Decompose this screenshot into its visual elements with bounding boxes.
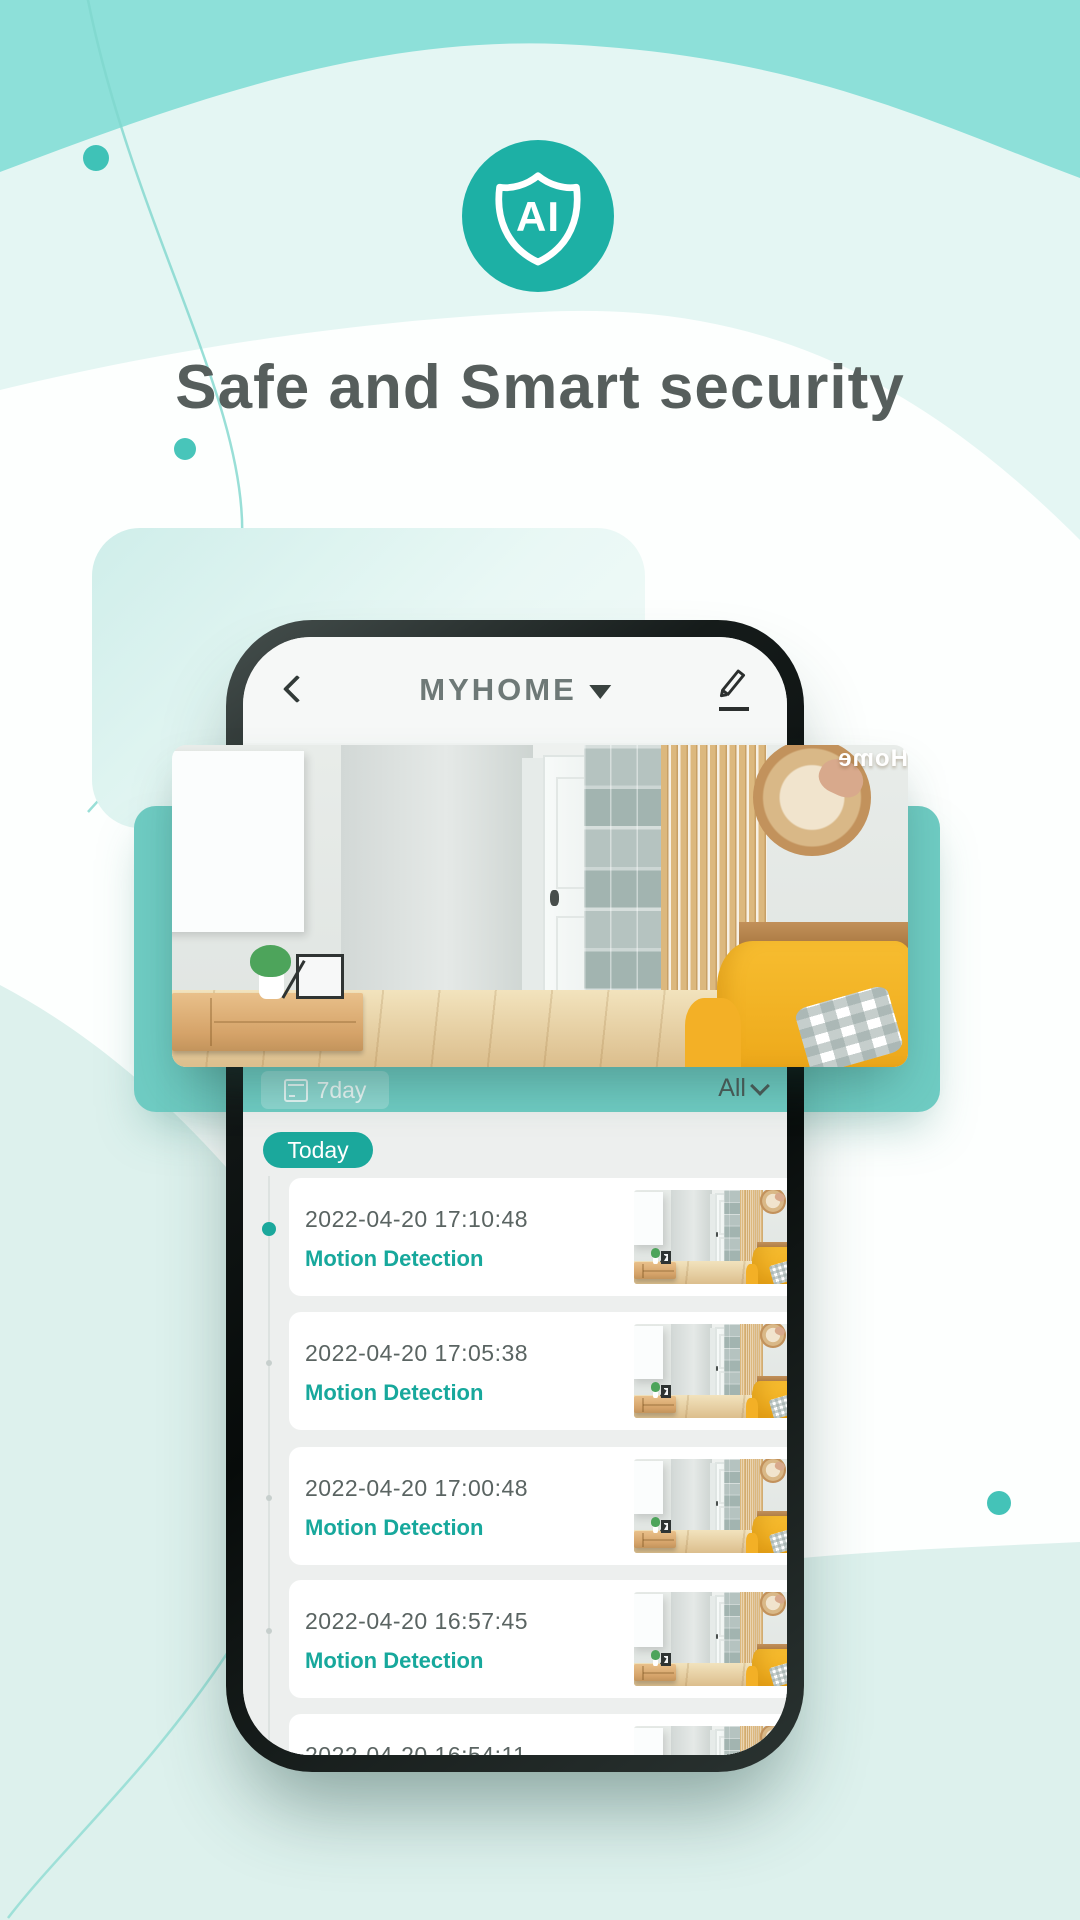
edit-underline xyxy=(719,707,749,711)
wood-wall-decor xyxy=(760,1190,786,1214)
tv-panel xyxy=(634,1461,663,1514)
timeline-dot xyxy=(266,1628,272,1634)
plant xyxy=(651,1517,660,1526)
event-thumbnail: Home xyxy=(634,1726,787,1755)
event-time: 2022-04-20 17:05:38 xyxy=(305,1340,528,1367)
sideboard xyxy=(634,1531,676,1548)
wood-wall-decor xyxy=(760,1726,786,1750)
range-label: 7day xyxy=(317,1077,367,1104)
event-row[interactable]: 2022-04-20 17:05:38 Motion Detection Hom… xyxy=(289,1312,787,1430)
event-type: Motion Detection xyxy=(305,1515,483,1541)
camera-scene: Home xyxy=(634,1592,787,1686)
event-row[interactable]: 2022-04-20 17:00:48 Motion Detection Hom… xyxy=(289,1447,787,1565)
page-title: Safe and Smart security xyxy=(0,352,1080,423)
tv-panel xyxy=(634,1728,663,1755)
camera-scene: Home xyxy=(634,1459,787,1553)
sideboard xyxy=(634,1262,676,1279)
range-7day-button[interactable]: 7day xyxy=(261,1071,389,1109)
camera-scene: Home xyxy=(172,745,908,1067)
plant xyxy=(250,945,291,977)
sideboard xyxy=(172,993,363,1051)
event-time: 2022-04-20 17:00:48 xyxy=(305,1475,528,1502)
picture-frame xyxy=(661,1385,672,1398)
wood-wall-decor xyxy=(760,1459,786,1483)
timeline-dot-active xyxy=(262,1222,276,1236)
event-type: Motion Detection xyxy=(305,1380,483,1406)
filter-all-dropdown[interactable]: All xyxy=(718,1074,767,1103)
wood-wall-decor xyxy=(760,1592,786,1616)
tv-panel xyxy=(634,1594,663,1647)
wood-wall-decor xyxy=(760,1324,786,1348)
event-time: 2022-04-20 16:57:45 xyxy=(305,1608,528,1635)
picture-frame xyxy=(296,954,345,999)
event-type: Motion Detection xyxy=(305,1246,483,1272)
pencil-icon xyxy=(713,665,749,701)
camera-scene: Home xyxy=(634,1324,787,1418)
home-selector[interactable]: MYHOME xyxy=(419,637,611,743)
timeline-dot xyxy=(266,1495,272,1501)
event-row[interactable]: 2022-04-20 17:10:48 Motion Detection Hom… xyxy=(289,1178,787,1296)
sideboard xyxy=(634,1396,676,1413)
app-logo: AI xyxy=(462,140,614,292)
event-time: 2022-04-20 16:54:11 xyxy=(305,1742,526,1755)
logo-text: AI xyxy=(462,140,614,292)
event-type: Motion Detection xyxy=(305,1648,483,1674)
today-badge: Today xyxy=(263,1132,373,1168)
navbar: MYHOME xyxy=(243,637,787,743)
picture-frame xyxy=(661,1251,672,1264)
camera-scene: Home xyxy=(634,1726,787,1755)
chevron-down-icon xyxy=(750,1076,770,1096)
picture-frame xyxy=(661,1520,672,1533)
home-letters: Home xyxy=(172,745,908,773)
calendar-icon xyxy=(284,1079,308,1102)
plant xyxy=(651,1248,660,1257)
timeline-line xyxy=(268,1176,270,1755)
event-row[interactable]: 2022-04-20 16:57:45 Motion Detection Hom… xyxy=(289,1580,787,1698)
home-title: MYHOME xyxy=(419,672,577,708)
marketing-screenshot: AI Safe and Smart security MYHOME xyxy=(0,0,1080,1920)
tv-panel xyxy=(172,751,304,931)
sideboard xyxy=(634,1664,676,1681)
tv-panel xyxy=(634,1192,663,1245)
camera-live-view[interactable]: Home xyxy=(172,745,908,1067)
camera-scene: Home xyxy=(634,1190,787,1284)
plant xyxy=(651,1650,660,1659)
event-time: 2022-04-20 17:10:48 xyxy=(305,1206,528,1233)
chevron-left-icon xyxy=(283,675,311,703)
event-row[interactable]: 2022-04-20 16:54:11 Home xyxy=(289,1714,787,1755)
plant xyxy=(651,1382,660,1391)
edit-button[interactable] xyxy=(713,665,759,715)
event-thumbnail: Home xyxy=(634,1324,787,1418)
deco-dot xyxy=(174,438,196,460)
back-button[interactable] xyxy=(273,667,317,711)
event-list: Today 2022-04-20 17:10:48 Motion Detecti… xyxy=(243,1112,787,1755)
deco-dot xyxy=(987,1491,1011,1515)
event-thumbnail: Home xyxy=(634,1190,787,1284)
event-thumbnail: Home xyxy=(634,1592,787,1686)
picture-frame xyxy=(661,1653,672,1666)
tv-panel xyxy=(634,1326,663,1379)
filter-all-label: All xyxy=(718,1074,746,1103)
timeline-dot xyxy=(266,1360,272,1366)
event-thumbnail: Home xyxy=(634,1459,787,1553)
caret-down-icon xyxy=(589,685,611,699)
deco-dot xyxy=(83,145,109,171)
